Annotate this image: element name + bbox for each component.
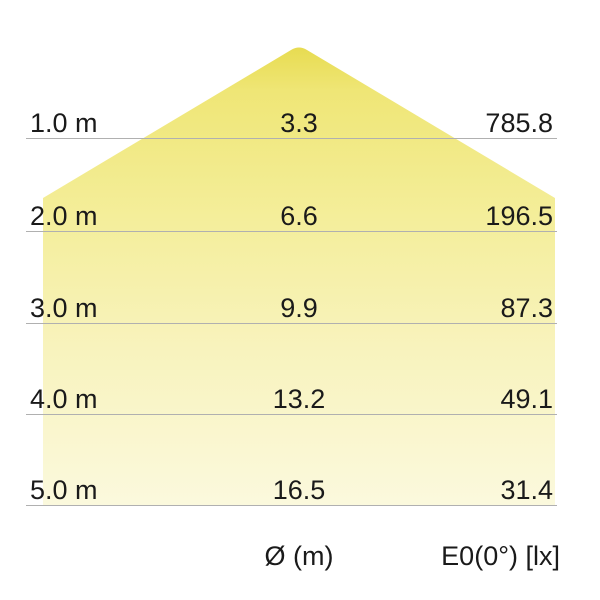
- row-distance-label: 1.0 m: [30, 109, 98, 137]
- distance-scale-line-1: [26, 138, 557, 139]
- row-illuminance-value: 87.3: [500, 294, 553, 322]
- diameter-axis-label: Ø (m): [265, 542, 334, 570]
- distance-scale-line-2: [26, 231, 557, 232]
- light-cone-diagram: 1.0 m 3.3 785.8 2.0 m 6.6 196.5 3.0 m 9.…: [0, 0, 600, 600]
- distance-scale-line-3: [26, 323, 557, 324]
- row-illuminance-value: 49.1: [500, 385, 553, 413]
- row-diameter-value: 3.3: [280, 109, 318, 137]
- row-distance-label: 5.0 m: [30, 476, 98, 504]
- row-illuminance-value: 785.8: [485, 109, 553, 137]
- row-diameter-value: 13.2: [273, 385, 326, 413]
- row-diameter-value: 16.5: [273, 476, 326, 504]
- distance-scale-line-4: [26, 414, 557, 415]
- row-illuminance-value: 31.4: [500, 476, 553, 504]
- row-illuminance-value: 196.5: [485, 202, 553, 230]
- row-distance-label: 2.0 m: [30, 202, 98, 230]
- illuminance-axis-label: E0(0°) [lx]: [441, 542, 560, 570]
- row-distance-label: 4.0 m: [30, 385, 98, 413]
- distance-scale-line-5: [26, 505, 557, 506]
- row-distance-label: 3.0 m: [30, 294, 98, 322]
- row-diameter-value: 9.9: [280, 294, 318, 322]
- row-diameter-value: 6.6: [280, 202, 318, 230]
